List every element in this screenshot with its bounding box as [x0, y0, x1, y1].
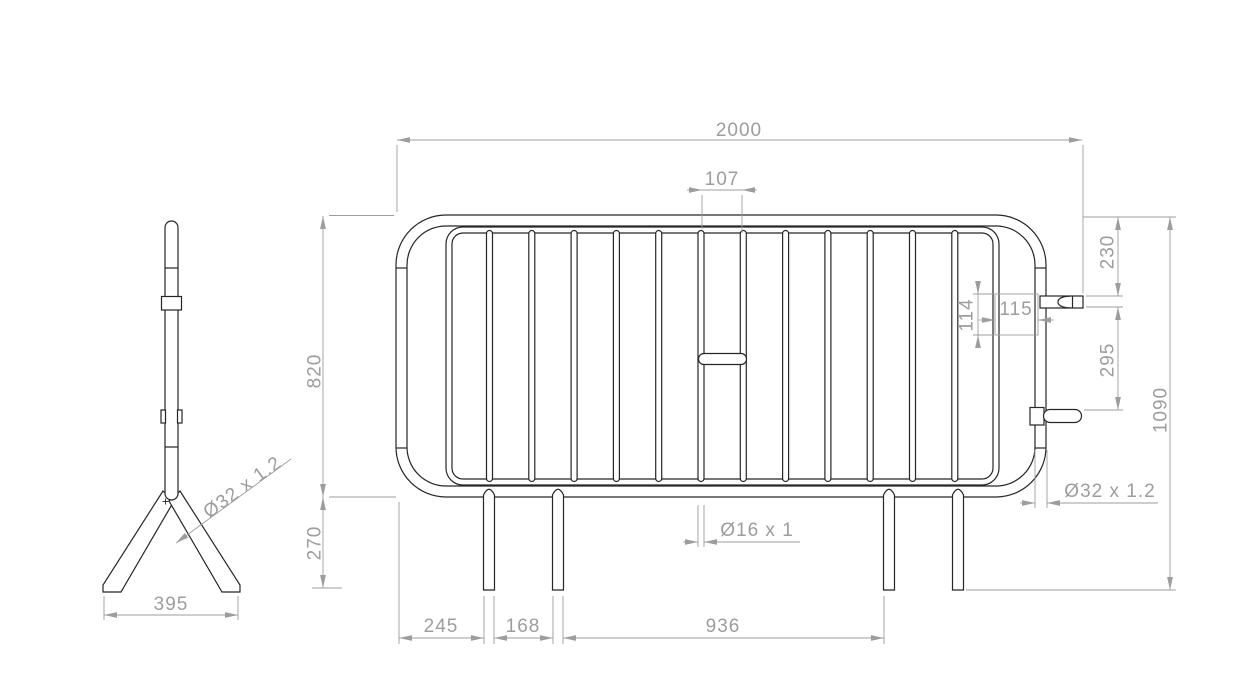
dim-bracket-width-text: 115: [999, 299, 1032, 320]
dim-frame-height-text: 820: [305, 354, 326, 389]
front-leg: [953, 489, 964, 590]
picket-bar: [487, 231, 493, 482]
dim-leg-positions: 245 168 936: [399, 502, 884, 644]
picket-bar: [825, 231, 831, 482]
picket-bar: [783, 231, 789, 482]
side-post: [165, 221, 178, 500]
side-hook-nub-left: [161, 410, 166, 423]
dim-leg-gap-text: 168: [506, 616, 541, 637]
label-frame-tube-side-text: Ø32 x 1.2: [200, 452, 286, 523]
dim-total-height: 1090: [966, 217, 1176, 590]
dimensions: 2000 107 820 270 395: [104, 120, 1176, 644]
picket-bar: [952, 231, 958, 482]
side-left-leg: [103, 491, 174, 592]
upper-hook: [1040, 296, 1083, 308]
label-frame-tube-front-text: Ø32 x 1.2: [1064, 481, 1155, 502]
dim-hook-top-offset-text: 230: [1098, 235, 1119, 270]
dim-foot-width-text: 395: [154, 594, 189, 615]
dim-frame-height: 820: [305, 216, 397, 498]
dim-leg-offset-text: 245: [424, 616, 459, 637]
dim-leg-span-text: 936: [706, 616, 741, 637]
dim-hook-spacing: 295: [1084, 307, 1123, 410]
front-leg: [884, 489, 895, 590]
dim-center-bar-gap: 107: [687, 169, 757, 233]
picket-bar: [867, 231, 873, 482]
picket-bar: [571, 231, 577, 482]
side-hook-nub-right: [178, 410, 183, 423]
dim-hook-top-offset: 230: [1083, 217, 1176, 296]
front-leg: [553, 489, 564, 590]
dim-center-bar-gap-text: 107: [705, 169, 740, 190]
dim-bracket-height-text: 114: [957, 298, 978, 331]
front-leg: [484, 489, 495, 590]
dim-total-height-text: 1090: [1151, 387, 1172, 433]
dim-overall-length-text: 2000: [716, 120, 762, 141]
dim-ground-clearance-text: 270: [305, 526, 326, 561]
picket-bar: [529, 231, 535, 482]
dim-foot-width: 395: [104, 594, 238, 620]
technical-drawing: 2000 107 820 270 395: [0, 0, 1252, 678]
picket-bar: [656, 231, 662, 482]
dim-bracket-height: 114: [957, 281, 994, 348]
dim-hook-spacing-text: 295: [1098, 343, 1119, 378]
picket-bar: [910, 231, 916, 482]
label-infill-tube-text: Ø16 x 1: [720, 520, 794, 541]
dim-ground-clearance: 270: [305, 497, 343, 588]
side-view: [103, 221, 240, 592]
picket-bar: [613, 231, 619, 482]
label-infill-tube: Ø16 x 1: [683, 505, 800, 547]
side-collar: [162, 297, 182, 311]
label-frame-tube-front: Ø32 x 1.2: [1020, 450, 1158, 508]
center-plate: [699, 354, 747, 365]
drawing-canvas: 2000 107 820 270 395: [0, 0, 1252, 678]
lower-hook: [1030, 408, 1082, 426]
